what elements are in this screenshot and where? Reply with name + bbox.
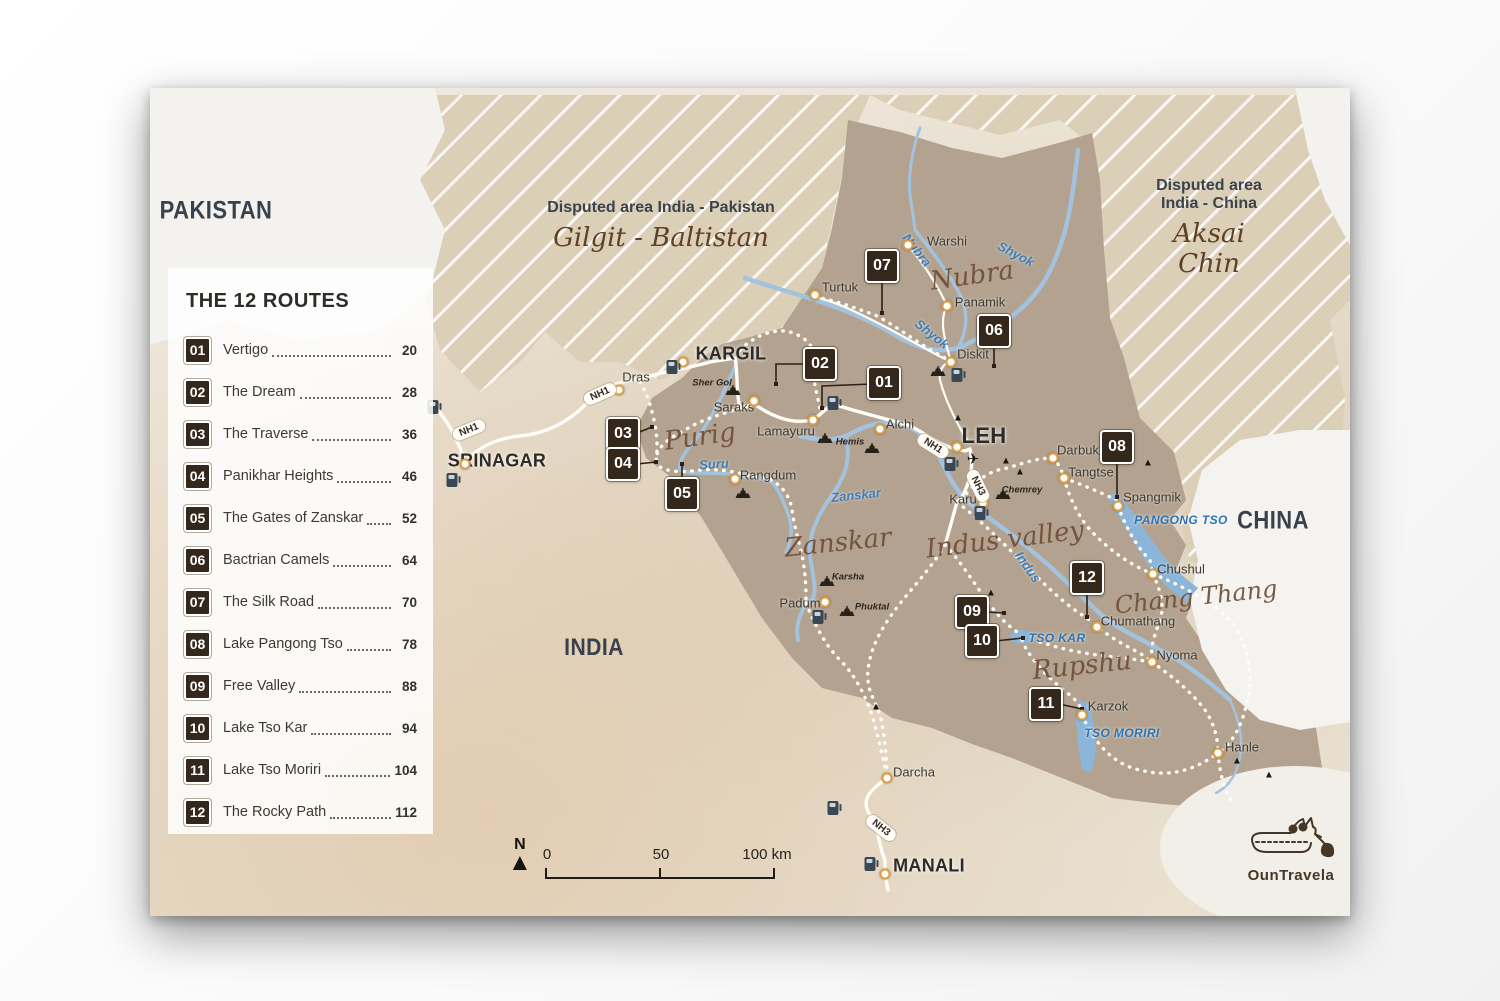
mountain-icon: ▲ bbox=[1232, 756, 1242, 767]
monastery-label: Chemrey bbox=[1002, 485, 1043, 496]
fuel-station-icon bbox=[813, 610, 824, 624]
city-label: MANALI bbox=[893, 856, 965, 877]
region-script-label: Nubra bbox=[928, 255, 1015, 296]
town-dot bbox=[1048, 453, 1059, 464]
scale-tick bbox=[545, 868, 547, 877]
legend-route-page: 112 bbox=[395, 805, 417, 820]
legend-route-name: The Traverse bbox=[223, 426, 308, 442]
town-label: Hanle bbox=[1225, 740, 1259, 755]
legend-route-name: The Rocky Path bbox=[223, 804, 326, 820]
fuel-station-icon bbox=[828, 801, 839, 815]
town-dot bbox=[730, 474, 741, 485]
route-marker-07: 07 bbox=[865, 249, 899, 283]
town-label: Dras bbox=[622, 370, 649, 385]
highway-shield: NH1 bbox=[451, 418, 487, 443]
legend-route-row: 03The Traverse36 bbox=[184, 413, 417, 455]
legend-route-number: 10 bbox=[184, 715, 211, 742]
mountain-icon: ▲ bbox=[871, 702, 881, 713]
city-dot bbox=[880, 869, 891, 880]
scale-tick bbox=[773, 868, 775, 877]
region-script-label: Zanskar bbox=[783, 522, 893, 563]
legend-route-row: 06Bactrian Camels64 bbox=[184, 539, 417, 581]
legend-route-number: 02 bbox=[184, 379, 211, 406]
legend-route-page: 70 bbox=[395, 595, 417, 610]
legend-route-row: 02The Dream28 bbox=[184, 371, 417, 413]
airport-icon: ✈ bbox=[967, 450, 980, 468]
town-dot bbox=[882, 773, 893, 784]
town-dot bbox=[1147, 657, 1158, 668]
legend-route-name: Lake Tso Kar bbox=[223, 720, 307, 736]
town-label: Turtuk bbox=[822, 280, 858, 295]
region-script-label: Indus valley bbox=[924, 515, 1085, 564]
ountravela-logo: OunTravela bbox=[1236, 810, 1346, 884]
mountain-icon: ▲ bbox=[1143, 458, 1153, 469]
town-dot bbox=[820, 597, 831, 608]
disputed-china-subtitle: Aksai Chin bbox=[1139, 219, 1280, 279]
highway-shield: NH1 bbox=[582, 381, 618, 407]
town-label: Karu bbox=[949, 492, 976, 507]
legend-dotted-leader bbox=[318, 595, 391, 609]
scale-bar: 0 50 100 km bbox=[545, 868, 775, 879]
legend-route-name: Panikhar Heights bbox=[223, 468, 333, 484]
disputed-pakistan-title: Disputed area India - Pakistan bbox=[547, 199, 775, 217]
legend-route-page: 20 bbox=[395, 343, 417, 358]
town-label: Alchi bbox=[886, 417, 914, 432]
legend-route-page: 36 bbox=[395, 427, 417, 442]
legend-route-name: Free Valley bbox=[223, 678, 295, 694]
fuel-station-icon bbox=[865, 857, 876, 871]
legend-route-page: 46 bbox=[395, 469, 417, 484]
country-label: CHINA bbox=[1237, 507, 1309, 536]
legend-route-number: 01 bbox=[184, 337, 211, 364]
town-label: Spangmik bbox=[1123, 490, 1181, 505]
legend-rows: 01Vertigo2002The Dream2803The Traverse36… bbox=[184, 329, 417, 833]
highway-shield: NH1 bbox=[915, 431, 951, 460]
legend-route-row: 10Lake Tso Kar94 bbox=[184, 707, 417, 749]
legend-dotted-leader bbox=[347, 637, 391, 651]
disputed-china-title: Disputed area India - China bbox=[1139, 177, 1280, 213]
town-label: Panamik bbox=[955, 295, 1006, 310]
legend-route-page: 28 bbox=[395, 385, 417, 400]
disputed-area-pakistan: Disputed area India - Pakistan Gilgit - … bbox=[547, 199, 775, 253]
route-marker-08: 08 bbox=[1100, 430, 1134, 464]
legend-route-row: 07The Silk Road70 bbox=[184, 581, 417, 623]
legend-route-page: 88 bbox=[395, 679, 417, 694]
fuel-station-icon bbox=[975, 506, 986, 520]
legend-dotted-leader bbox=[367, 511, 391, 525]
legend-route-number: 06 bbox=[184, 547, 211, 574]
town-dot bbox=[903, 240, 914, 251]
town-label: Darbuk bbox=[1057, 443, 1099, 458]
city-dot bbox=[460, 459, 471, 470]
highway-shield: NH3 bbox=[864, 812, 899, 843]
monastery-label: Hemis bbox=[836, 437, 865, 448]
town-dot bbox=[942, 301, 953, 312]
route-marker-10: 10 bbox=[965, 624, 999, 658]
scale-label-50: 50 bbox=[653, 846, 670, 863]
monastery-icon bbox=[865, 443, 880, 453]
legend-route-name: Lake Tso Moriri bbox=[223, 762, 321, 778]
route-marker-05: 05 bbox=[665, 477, 699, 511]
crocodile-logo-icon bbox=[1243, 810, 1339, 864]
town-label: Diskit bbox=[957, 347, 989, 362]
scale-label-100: 100 km bbox=[742, 846, 791, 863]
monastery-icon bbox=[818, 433, 833, 443]
river-label: Indus bbox=[1012, 548, 1044, 585]
legend-route-page: 104 bbox=[394, 763, 417, 778]
town-dot bbox=[1113, 501, 1124, 512]
route-marker-11: 11 bbox=[1029, 687, 1063, 721]
disputed-pakistan-subtitle: Gilgit - Baltistan bbox=[547, 223, 775, 253]
town-dot bbox=[875, 424, 886, 435]
legend-route-page: 94 bbox=[395, 721, 417, 736]
legend-route-page: 52 bbox=[395, 511, 417, 526]
town-label: Lamayuru bbox=[757, 424, 815, 439]
legend-route-number: 09 bbox=[184, 673, 211, 700]
legend-route-row: 01Vertigo20 bbox=[184, 329, 417, 371]
mountain-icon: ▲ bbox=[1264, 770, 1274, 781]
lake-label: TSO MORIRI bbox=[1084, 726, 1159, 740]
north-arrow-icon: ▲ bbox=[508, 854, 532, 872]
legend-route-name: Lake Pangong Tso bbox=[223, 636, 343, 652]
town-dot bbox=[1077, 710, 1088, 721]
legend-route-row: 08Lake Pangong Tso78 bbox=[184, 623, 417, 665]
town-dot bbox=[749, 396, 760, 407]
legend-dotted-leader bbox=[330, 805, 391, 819]
route-marker-01: 01 bbox=[867, 366, 901, 400]
legend-dotted-leader bbox=[312, 427, 391, 441]
fuel-station-icon bbox=[828, 396, 839, 410]
legend-route-page: 64 bbox=[395, 553, 417, 568]
scale-tick bbox=[659, 868, 661, 877]
city-label: LEH bbox=[962, 423, 1007, 449]
legend-dotted-leader bbox=[311, 721, 391, 735]
disputed-area-china: Disputed area India - China Aksai Chin bbox=[1139, 177, 1280, 279]
route-marker-02: 02 bbox=[803, 347, 837, 381]
fuel-station-icon bbox=[667, 360, 678, 374]
legend-dotted-leader bbox=[325, 763, 390, 777]
mountain-icon: ▲ bbox=[1001, 456, 1011, 467]
river-label: Suru bbox=[699, 455, 730, 472]
town-label: Chumathang bbox=[1101, 614, 1175, 629]
lake-label: TSO KAR bbox=[1029, 631, 1086, 645]
fuel-station-icon bbox=[952, 368, 963, 382]
logo-text: OunTravela bbox=[1236, 867, 1346, 884]
legend-title: THE 12 ROUTES bbox=[186, 290, 417, 313]
city-label: KARGIL bbox=[696, 344, 767, 365]
legend-route-row: 11Lake Tso Moriri104 bbox=[184, 749, 417, 791]
fuel-station-icon bbox=[447, 473, 458, 487]
monastery-label: Karsha bbox=[832, 572, 864, 583]
legend-route-row: 09Free Valley88 bbox=[184, 665, 417, 707]
legend-panel: THE 12 ROUTES 01Vertigo2002The Dream2803… bbox=[168, 268, 433, 834]
town-dot bbox=[946, 357, 957, 368]
legend-dotted-leader bbox=[300, 385, 391, 399]
legend-route-number: 04 bbox=[184, 463, 211, 490]
legend-dotted-leader bbox=[272, 343, 391, 357]
legend-dotted-leader bbox=[299, 679, 391, 693]
route-marker-03: 03 bbox=[606, 417, 640, 451]
town-dot bbox=[1213, 748, 1224, 759]
scale-label-0: 0 bbox=[543, 846, 551, 863]
river-label: Shyok bbox=[912, 316, 952, 352]
city-dot bbox=[952, 442, 963, 453]
legend-route-name: Vertigo bbox=[223, 342, 268, 358]
mountain-icon: ▲ bbox=[953, 413, 963, 424]
town-label: Chushul bbox=[1157, 562, 1205, 577]
monastery-icon bbox=[840, 606, 855, 616]
mountain-icon: ▲ bbox=[1015, 467, 1025, 478]
route-marker-12: 12 bbox=[1070, 561, 1104, 595]
legend-dotted-leader bbox=[337, 469, 391, 483]
town-label: Rangdum bbox=[740, 468, 796, 483]
town-dot bbox=[1059, 473, 1070, 484]
town-label: Darcha bbox=[893, 765, 935, 780]
legend-dotted-leader bbox=[333, 553, 391, 567]
legend-route-number: 07 bbox=[184, 589, 211, 616]
region-script-label: Purig bbox=[662, 417, 737, 457]
legend-route-number: 12 bbox=[184, 799, 211, 826]
country-label: INDIA bbox=[564, 634, 624, 662]
monastery-label: Phuktal bbox=[855, 602, 889, 613]
legend-route-row: 04Panikhar Heights46 bbox=[184, 455, 417, 497]
legend-route-name: The Silk Road bbox=[223, 594, 314, 610]
legend-route-page: 78 bbox=[395, 637, 417, 652]
legend-route-name: The Gates of Zanskar bbox=[223, 510, 363, 526]
town-label: Nyoma bbox=[1156, 648, 1197, 663]
legend-route-number: 08 bbox=[184, 631, 211, 658]
town-label: Padum bbox=[779, 596, 820, 611]
monastery-icon bbox=[931, 366, 946, 376]
legend-route-number: 03 bbox=[184, 421, 211, 448]
region-script-label: Rupshu bbox=[1031, 646, 1133, 686]
monastery-label: Sher Gol bbox=[692, 378, 732, 389]
fuel-station-icon bbox=[945, 457, 956, 471]
town-dot bbox=[1148, 569, 1159, 580]
town-dot bbox=[1092, 622, 1103, 633]
town-dot bbox=[810, 290, 821, 301]
legend-route-row: 12The Rocky Path112 bbox=[184, 791, 417, 833]
town-label: Warshi bbox=[927, 234, 967, 249]
map-page: PAKISTANINDIACHINANubraPurigZanskarIndus… bbox=[150, 88, 1350, 916]
monastery-icon bbox=[736, 488, 751, 498]
town-dot bbox=[808, 415, 819, 426]
country-label: PAKISTAN bbox=[160, 197, 273, 226]
route-marker-06: 06 bbox=[977, 314, 1011, 348]
town-label: Karzok bbox=[1088, 699, 1128, 714]
lake-label: PANGONG TSO bbox=[1134, 513, 1228, 527]
river-label: Zanskar bbox=[830, 485, 881, 505]
town-label: Tangtse bbox=[1068, 465, 1114, 480]
legend-route-number: 11 bbox=[184, 757, 211, 784]
legend-route-number: 05 bbox=[184, 505, 211, 532]
route-marker-04: 04 bbox=[606, 447, 640, 481]
legend-route-row: 05The Gates of Zanskar52 bbox=[184, 497, 417, 539]
north-indicator: N ▲ bbox=[508, 836, 532, 872]
legend-route-name: The Dream bbox=[223, 384, 296, 400]
legend-route-name: Bactrian Camels bbox=[223, 552, 329, 568]
